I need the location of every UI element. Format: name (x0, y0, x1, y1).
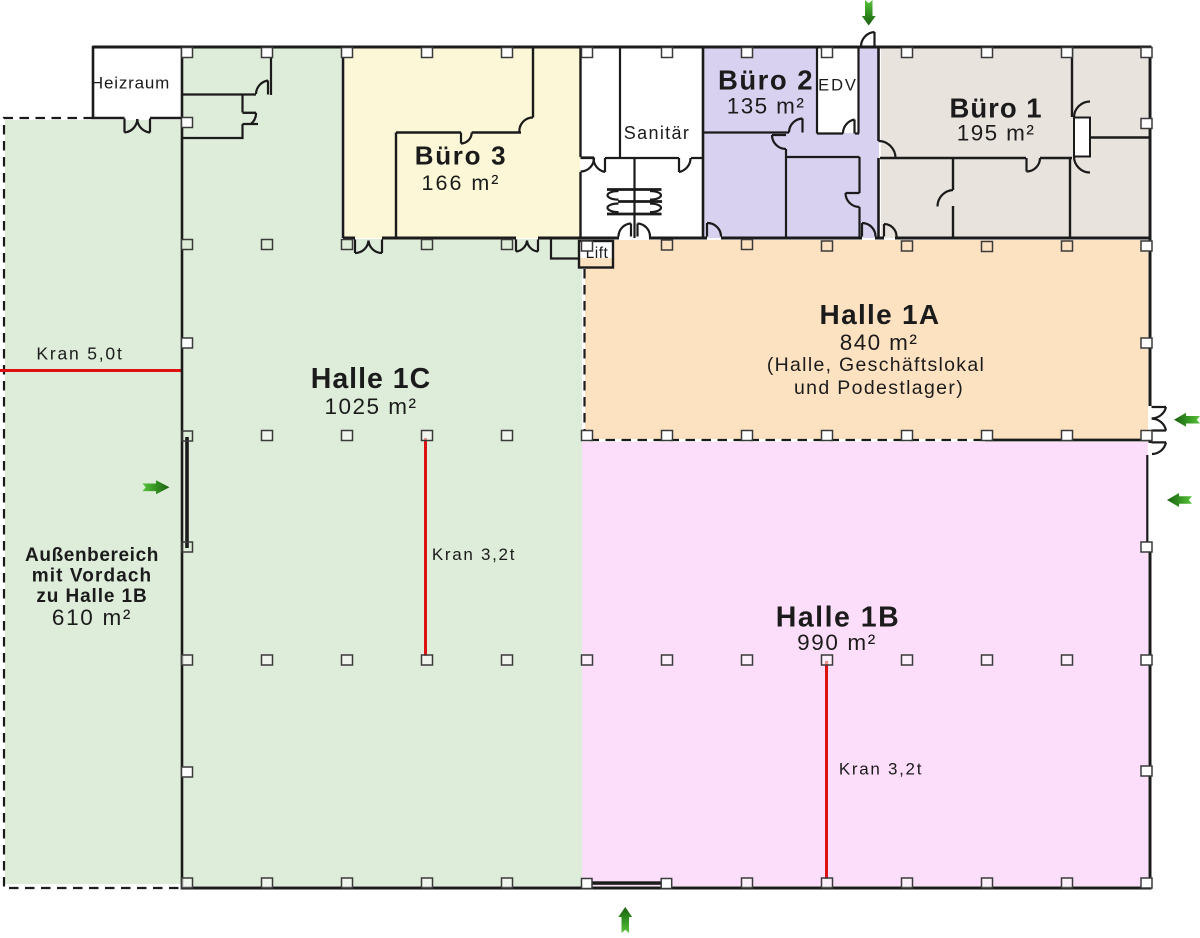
svg-text:840 m²: 840 m² (840, 330, 918, 355)
svg-text:(Halle, Geschäftslokal: (Halle, Geschäftslokal (767, 354, 985, 376)
svg-text:135 m²: 135 m² (727, 94, 805, 119)
svg-text:mit Vordach: mit Vordach (32, 566, 153, 587)
svg-text:Kran 3,2t: Kran 3,2t (839, 760, 923, 779)
svg-text:Büro 3: Büro 3 (415, 141, 508, 171)
svg-text:1025 m²: 1025 m² (324, 394, 417, 419)
svg-text:195 m²: 195 m² (957, 121, 1035, 146)
svg-text:Büro 1: Büro 1 (949, 93, 1042, 124)
svg-text:Halle 1C: Halle 1C (311, 363, 431, 395)
svg-text:610 m²: 610 m² (52, 605, 132, 630)
svg-text:Außenbereich: Außenbereich (25, 545, 159, 566)
svg-text:Heizraum: Heizraum (91, 74, 170, 93)
svg-text:und Podestlager): und Podestlager) (794, 377, 964, 399)
svg-text:990 m²: 990 m² (797, 630, 877, 655)
svg-text:Sanitär: Sanitär (624, 123, 690, 143)
svg-text:Halle 1B: Halle 1B (776, 602, 900, 634)
svg-text:Kran 3,2t: Kran 3,2t (432, 545, 516, 564)
svg-text:zu Halle 1B: zu Halle 1B (36, 586, 147, 607)
svg-text:Kran 5,0t: Kran 5,0t (36, 344, 123, 364)
svg-text:166 m²: 166 m² (422, 171, 501, 195)
svg-text:Büro 2: Büro 2 (718, 65, 814, 96)
svg-text:EDV: EDV (818, 77, 858, 95)
svg-text:Halle 1A: Halle 1A (820, 299, 941, 330)
